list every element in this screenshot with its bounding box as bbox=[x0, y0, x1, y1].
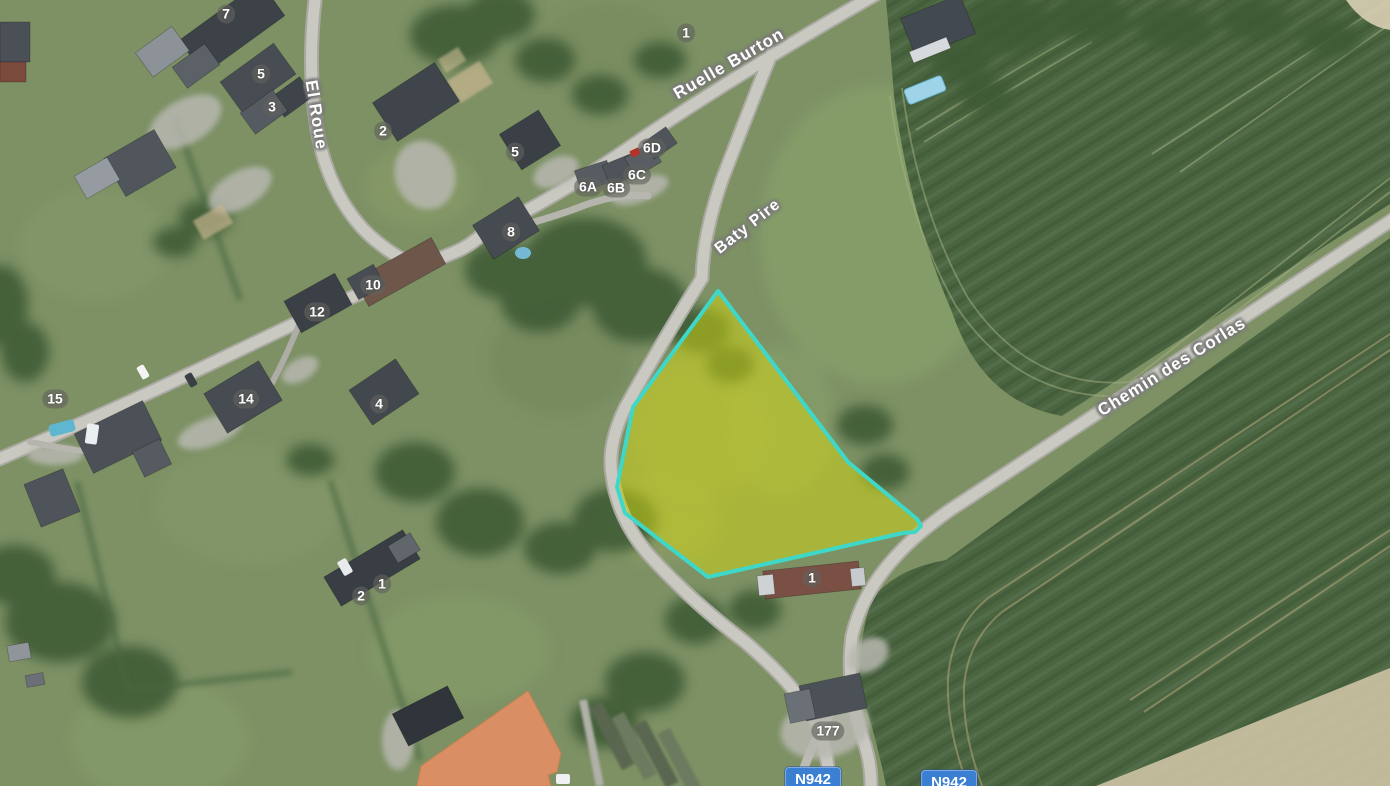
aerial-map-canvas[interactable]: El RoueRuelle BurtonBaty PireChemin des … bbox=[0, 0, 1390, 786]
aerial-photo-layer bbox=[0, 0, 1390, 786]
